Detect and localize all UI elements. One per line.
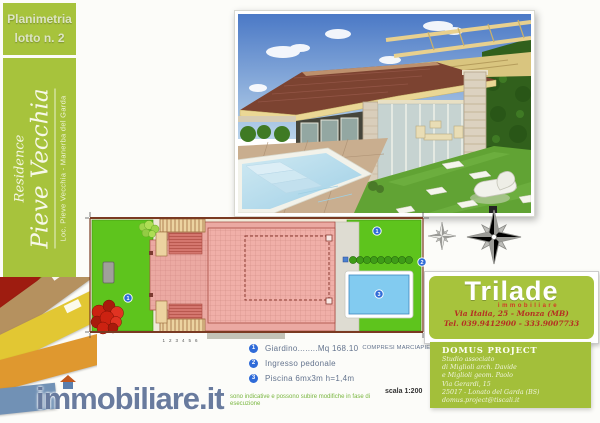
swatch-label-chip: [64, 299, 82, 313]
gate: [103, 262, 114, 283]
agency-card: Trilade immobiliare Via Italia, 25 - Mon…: [424, 271, 599, 344]
swatch-label-chip: [50, 277, 68, 280]
flyer-page: Planimetria lotto n. 2 Residence Pieve V…: [0, 0, 600, 423]
svg-text:2: 2: [420, 260, 423, 266]
legend-marker-1: 1: [249, 344, 258, 353]
agency-name: Trilade: [429, 278, 594, 305]
studio-line-3: e Miglioli geom. Paolo: [442, 372, 591, 380]
legend-note-1: COMPRESI MARCIAPIEDI: [362, 345, 436, 351]
plan-title-line2: lotto n. 2: [3, 29, 76, 48]
left-garden-wall: [238, 116, 296, 142]
plan-title-line1: Planimetria: [3, 10, 76, 29]
legend-item-entrance: 2 Ingresso pedonale: [249, 357, 336, 369]
svg-text:3: 3: [377, 292, 380, 298]
legend-item-pool: 3 Piscina 6mx3m h=1,4m: [249, 372, 354, 384]
legend-text-3: Piscina 6mx3m h=1,4m: [265, 374, 354, 383]
compass-rose-small-icon: [428, 222, 456, 250]
compass-rose-icon: [467, 210, 521, 264]
shadow-strip: [207, 333, 285, 339]
villa-rendering: [238, 14, 531, 213]
legend-text-1: Giardino........Mq 168.10: [265, 344, 358, 353]
compass-north-mark: [489, 206, 497, 213]
plan-marker-entrance: 2: [418, 258, 426, 266]
disclaimer-text: sono indicative e possono subire modific…: [230, 394, 395, 408]
residence-location: Loc. Pieve Vecchia - Manerba del Garda: [59, 95, 68, 241]
building-footprint: [149, 222, 335, 331]
hedge-row: [349, 256, 412, 263]
legend-marker-2: 2: [249, 359, 258, 368]
studio-box: DOMUS PROJECT Studio associato di Miglio…: [430, 342, 591, 408]
plan-marker-garden-left: 1: [124, 294, 132, 302]
house-icon: [59, 374, 77, 389]
legend-item-garden: 1 Giardino........Mq 168.10 COMPRESI MAR…: [249, 342, 437, 354]
studio-line-1: Studio associato: [442, 356, 591, 364]
plan-marker-garden-right: 1: [373, 227, 381, 235]
hedge-end-marker: [343, 257, 348, 262]
step-numbers: 123456: [162, 338, 201, 343]
residence-sidebar: Residence Pieve Vecchia Loc. Pieve Vecch…: [3, 58, 76, 280]
plan-title: Planimetria lotto n. 2: [3, 3, 76, 55]
legend-marker-3: 3: [249, 374, 258, 383]
residence-prefix: Residence: [13, 135, 28, 203]
studio-title: DOMUS PROJECT: [442, 346, 591, 356]
agency-phone: Tel. 039.9412900 - 333.9007733: [429, 319, 594, 329]
studio-line-2: di Miglioli arch. Davide: [442, 364, 591, 372]
sidebar-rotated-text: Residence Pieve Vecchia Loc. Pieve Vecch…: [4, 58, 77, 280]
studio-line-5: 25017 - Lonato del Garda (BS): [442, 389, 591, 397]
agency-card-green: Trilade immobiliare Via Italia, 25 - Mon…: [429, 276, 594, 339]
legend-text-2: Ingresso pedonale: [265, 359, 336, 368]
villa-rendering-frame: [234, 10, 535, 217]
agency-address: Via Italia, 25 - Monza (MB): [429, 309, 594, 319]
studio-line-6: domus.project@tiscali.it: [442, 397, 591, 405]
plan-marker-pool: 3: [375, 290, 383, 298]
residence-name: Pieve Vecchia: [29, 88, 56, 248]
svg-text:1: 1: [375, 229, 378, 235]
studio-line-4: Via Gerardi, 15: [442, 381, 591, 389]
svg-text:1: 1: [126, 296, 129, 302]
